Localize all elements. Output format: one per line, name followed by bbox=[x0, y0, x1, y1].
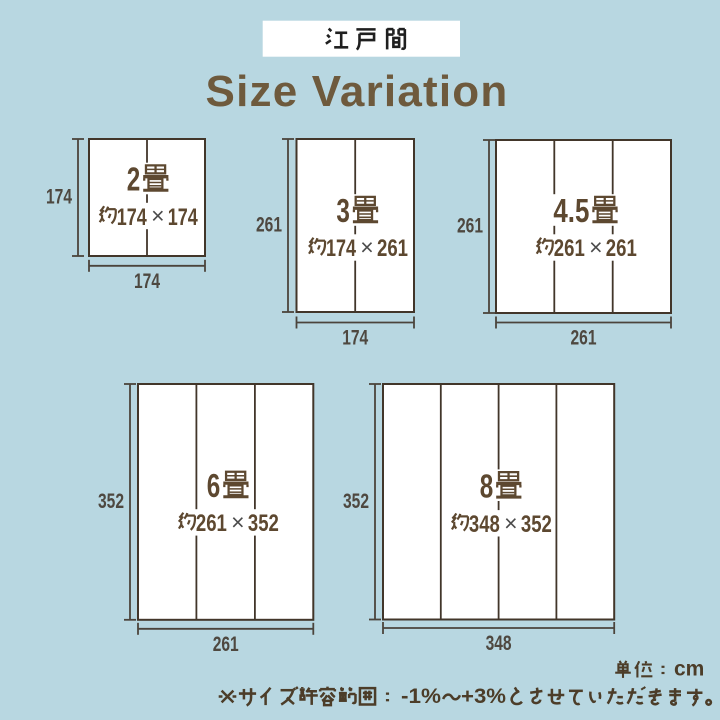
svg-text:261: 261 bbox=[606, 235, 637, 262]
svg-text:×: × bbox=[504, 510, 517, 536]
svg-text:174: 174 bbox=[326, 235, 356, 262]
svg-text:261: 261 bbox=[196, 510, 227, 537]
svg-text:4.5: 4.5 bbox=[553, 193, 589, 230]
svg-text:352: 352 bbox=[343, 490, 369, 513]
svg-text:×: × bbox=[589, 234, 602, 260]
svg-text:-1%: -1% bbox=[401, 685, 441, 708]
svg-text:174: 174 bbox=[46, 186, 72, 209]
svg-text:8: 8 bbox=[480, 468, 494, 505]
svg-text:261: 261 bbox=[213, 633, 239, 656]
svg-text:6: 6 bbox=[207, 468, 221, 505]
svg-text:352: 352 bbox=[248, 510, 279, 537]
svg-text:261: 261 bbox=[256, 214, 282, 237]
svg-text:261: 261 bbox=[377, 235, 408, 262]
svg-text:348: 348 bbox=[469, 511, 500, 538]
svg-text:×: × bbox=[151, 203, 164, 229]
svg-text:2: 2 bbox=[127, 162, 141, 199]
svg-text:3: 3 bbox=[336, 193, 350, 230]
svg-text:352: 352 bbox=[98, 490, 124, 513]
svg-text:261: 261 bbox=[457, 215, 483, 238]
svg-text:261: 261 bbox=[571, 327, 597, 350]
svg-text:352: 352 bbox=[521, 511, 552, 538]
svg-text:cm: cm bbox=[674, 658, 704, 681]
svg-text:174: 174 bbox=[117, 204, 147, 231]
svg-text:174: 174 bbox=[134, 270, 160, 293]
svg-text:348: 348 bbox=[486, 632, 512, 655]
svg-text:174: 174 bbox=[168, 204, 198, 231]
svg-text:+3%: +3% bbox=[461, 685, 506, 708]
svg-text:Size Variation: Size Variation bbox=[206, 67, 509, 116]
svg-text:×: × bbox=[360, 234, 373, 260]
svg-text:×: × bbox=[231, 509, 244, 535]
svg-text:174: 174 bbox=[342, 327, 368, 350]
svg-text:261: 261 bbox=[554, 235, 585, 262]
